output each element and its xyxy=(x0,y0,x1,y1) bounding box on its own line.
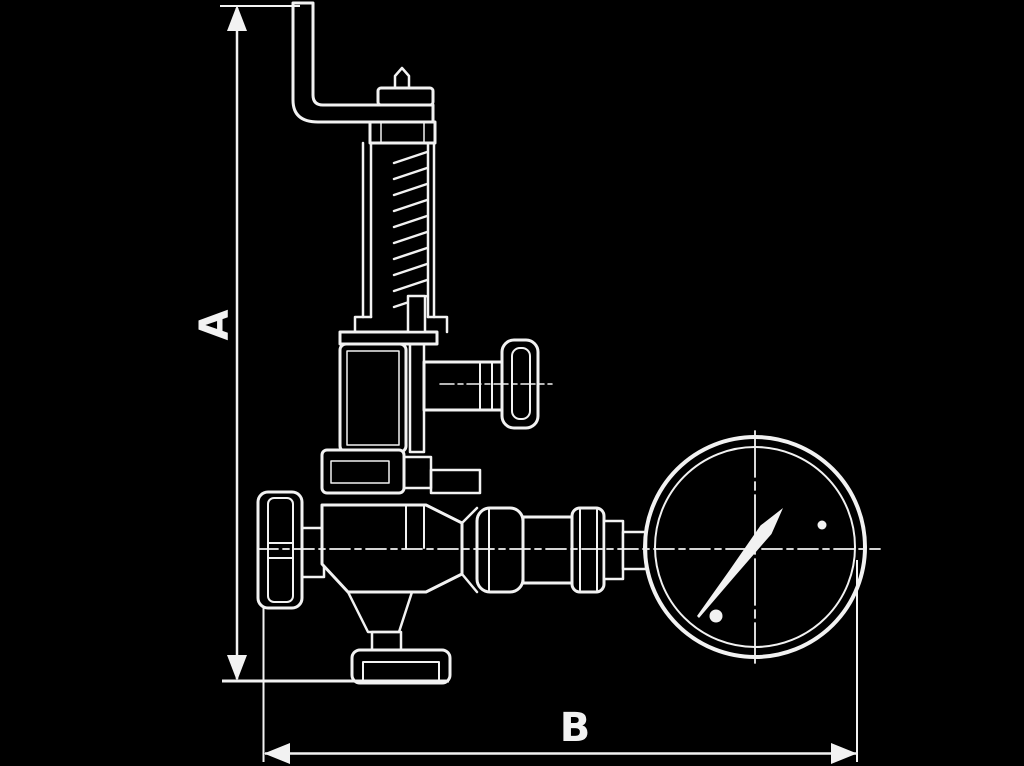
test-knob-stem xyxy=(424,362,502,410)
side-cap-disc xyxy=(258,492,302,608)
dimension-b-arrow-right xyxy=(831,743,857,764)
inlet-flange xyxy=(352,650,450,683)
gauge-pipe xyxy=(623,532,646,569)
valve-dimensional-drawing: A B xyxy=(0,0,1024,766)
bonnet-flange xyxy=(322,450,404,493)
drawing-canvas: A B xyxy=(0,0,1024,766)
spring-seat xyxy=(408,296,425,332)
fitting-3-nut xyxy=(572,508,604,592)
gauge-connection-fittings xyxy=(462,508,646,592)
valve-drawing xyxy=(258,3,880,683)
spring-column-left-wall xyxy=(363,143,371,317)
spindle-guide xyxy=(410,344,424,452)
pressure-gauge xyxy=(645,431,865,663)
flange-wing xyxy=(431,470,480,493)
gauge-dot-large xyxy=(710,610,723,623)
bonnet-top-band-detail xyxy=(381,122,424,143)
gauge-dot-small xyxy=(818,521,827,530)
outlet-face xyxy=(462,508,477,592)
spring-column-right-wall xyxy=(428,143,434,317)
dimension-b-arrow-left xyxy=(264,743,290,764)
spring-column-feet xyxy=(355,317,447,332)
spindle-packing xyxy=(404,457,431,488)
spindle-cap xyxy=(378,88,433,105)
bonnet-block xyxy=(340,344,406,452)
fitting-1 xyxy=(477,508,523,592)
dimension-b-label: B xyxy=(560,705,591,751)
inlet-neck xyxy=(372,632,401,651)
gauge-needle xyxy=(697,508,783,618)
dimension-a-label: A xyxy=(192,309,238,340)
dimension-a-arrow-down xyxy=(227,655,247,681)
spring xyxy=(394,152,427,307)
inlet-taper xyxy=(348,592,412,632)
fitting-2 xyxy=(523,517,572,583)
dimension-a-arrow-up xyxy=(227,5,247,31)
bonnet-top-plate xyxy=(340,332,437,344)
bonnet-top-band xyxy=(370,122,435,143)
fitting-4 xyxy=(604,521,623,579)
